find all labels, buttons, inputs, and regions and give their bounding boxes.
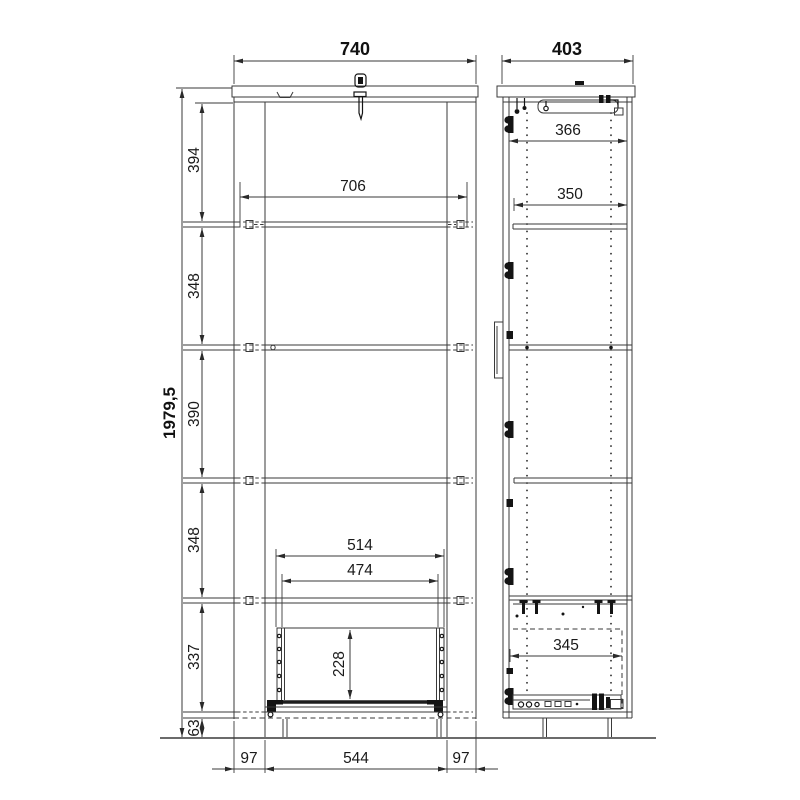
shelf-side-1 [513,224,627,229]
lock-icon [355,74,366,87]
dim-label-514: 514 [347,537,373,554]
dim-label-394: 394 [186,147,203,173]
dim-label-706: 706 [340,178,366,195]
feet-front [283,719,441,737]
technical-drawing-page: 740 403 1979,5 394 [0,0,800,800]
feet-side [543,718,612,737]
dim-inner-width: 706 [240,178,467,227]
dim-label-366: 366 [555,122,581,139]
dim-drawer-height: 228 [331,630,350,699]
wardrobe-dimension-drawing: 740 403 1979,5 394 [0,0,800,800]
dim-section-348a: 348 [186,228,203,344]
shelf-front-1 [237,221,473,229]
dim-label-348a: 348 [186,273,203,299]
dim-section-348b: 348 [186,484,203,597]
dim-label-350: 350 [557,186,583,203]
hinge-icon [504,688,513,705]
dim-label-403: 403 [552,39,582,59]
dim-base-row: 97 544 97 [212,721,498,773]
dim-label-390: 390 [186,401,203,427]
dim-section-337: 337 [186,604,203,711]
dim-section-390: 390 [186,351,203,477]
drawer-slide [513,694,623,711]
dim-drawer-inner-width: 474 [282,562,438,627]
drawer-front [267,628,445,717]
dim-label-348b: 348 [186,527,203,553]
side-carcass [497,86,635,718]
hinge-icon [504,421,513,438]
dim-label-474: 474 [347,562,373,579]
dim-label-740: 740 [340,39,370,59]
shelf-side-3 [514,478,632,483]
dim-label-63: 63 [186,719,203,736]
dim-label-345: 345 [553,637,579,654]
dim-label-97-left: 97 [240,750,257,767]
dim-label-544: 544 [343,750,369,767]
shelf-front-3 [237,477,473,485]
front-view [232,74,478,737]
shelf-front-2 [237,344,473,352]
dim-overall-depth: 403 [502,39,633,84]
dim-label-228: 228 [331,651,348,677]
door-handle [495,322,504,378]
hinge-icon [504,568,513,585]
drawer-corner-bracket-left [267,700,283,717]
shelf-side-4 [509,596,632,618]
drawer-corner-bracket-right [427,700,443,717]
dim-label-337: 337 [186,644,203,670]
dim-label-1979-5: 1979,5 [160,387,179,439]
dim-drawer-depth: 345 [510,637,622,662]
key-icon [354,92,366,119]
hinge-icon [504,116,513,133]
door-mount-marks [507,331,514,674]
dim-label-97-right: 97 [452,750,469,767]
dim-plinth-63: 63 [186,719,203,737]
dim-drawer-outer-width: 514 [276,537,444,627]
drawer-rail-screws [278,634,444,691]
dim-section-394: 394 [186,104,203,221]
hinge-icon [504,262,513,279]
shelf-screws [516,600,616,618]
dimensions: 740 403 1979,5 394 [160,39,633,773]
dim-shelf-depth: 350 [514,186,627,211]
